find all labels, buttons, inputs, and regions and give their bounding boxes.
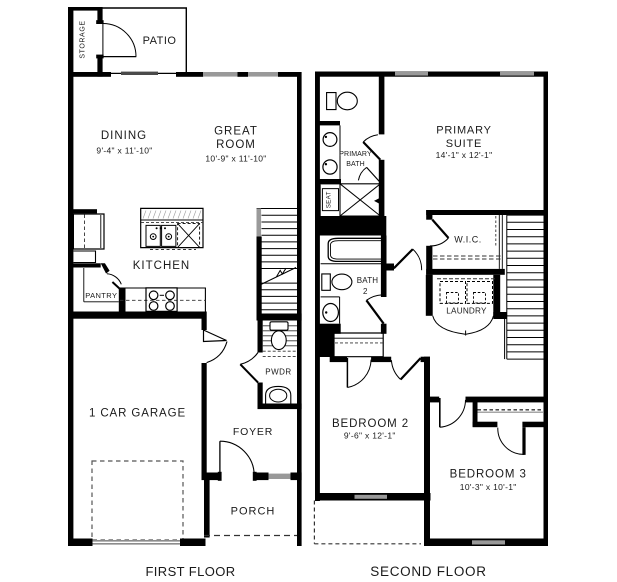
svg-text:SECOND FLOOR: SECOND FLOOR [370, 564, 486, 579]
svg-text:PRIMARY: PRIMARY [339, 151, 372, 158]
svg-text:PATIO: PATIO [143, 35, 177, 47]
svg-text:PWDR: PWDR [265, 368, 291, 377]
svg-text:10'-3" x 10'-1": 10'-3" x 10'-1" [460, 482, 517, 492]
svg-text:DINING: DINING [101, 130, 147, 142]
svg-text:BATH: BATH [346, 161, 365, 168]
svg-text:BATH: BATH [357, 276, 379, 285]
svg-text:1 CAR GARAGE: 1 CAR GARAGE [89, 408, 186, 420]
svg-text:PANTRY: PANTRY [85, 291, 117, 300]
svg-text:9'-6" x 12'-1": 9'-6" x 12'-1" [344, 431, 396, 441]
svg-text:FIRST FLOOR: FIRST FLOOR [145, 564, 235, 579]
svg-text:STORAGE: STORAGE [80, 20, 87, 58]
svg-text:SUITE: SUITE [446, 138, 482, 150]
svg-text:SEAT: SEAT [325, 191, 332, 208]
svg-text:FOYER: FOYER [233, 426, 273, 438]
svg-text:LAUNDRY: LAUNDRY [446, 306, 487, 315]
svg-text:ROOM: ROOM [216, 139, 256, 151]
svg-text:PORCH: PORCH [231, 506, 276, 518]
svg-text:2: 2 [363, 287, 368, 296]
svg-text:KITCHEN: KITCHEN [133, 260, 190, 272]
svg-text:14'-1" x 12'-1": 14'-1" x 12'-1" [436, 150, 493, 160]
svg-text:GREAT: GREAT [214, 126, 258, 138]
svg-text:W.I.C.: W.I.C. [454, 235, 482, 245]
svg-text:PRIMARY: PRIMARY [436, 125, 492, 137]
svg-text:BEDROOM 3: BEDROOM 3 [450, 469, 527, 481]
svg-text:BEDROOM 2: BEDROOM 2 [332, 418, 409, 430]
svg-text:9'-4" x 11'-10": 9'-4" x 11'-10" [96, 146, 152, 156]
svg-text:10'-9" x 11'-10": 10'-9" x 11'-10" [205, 154, 266, 164]
